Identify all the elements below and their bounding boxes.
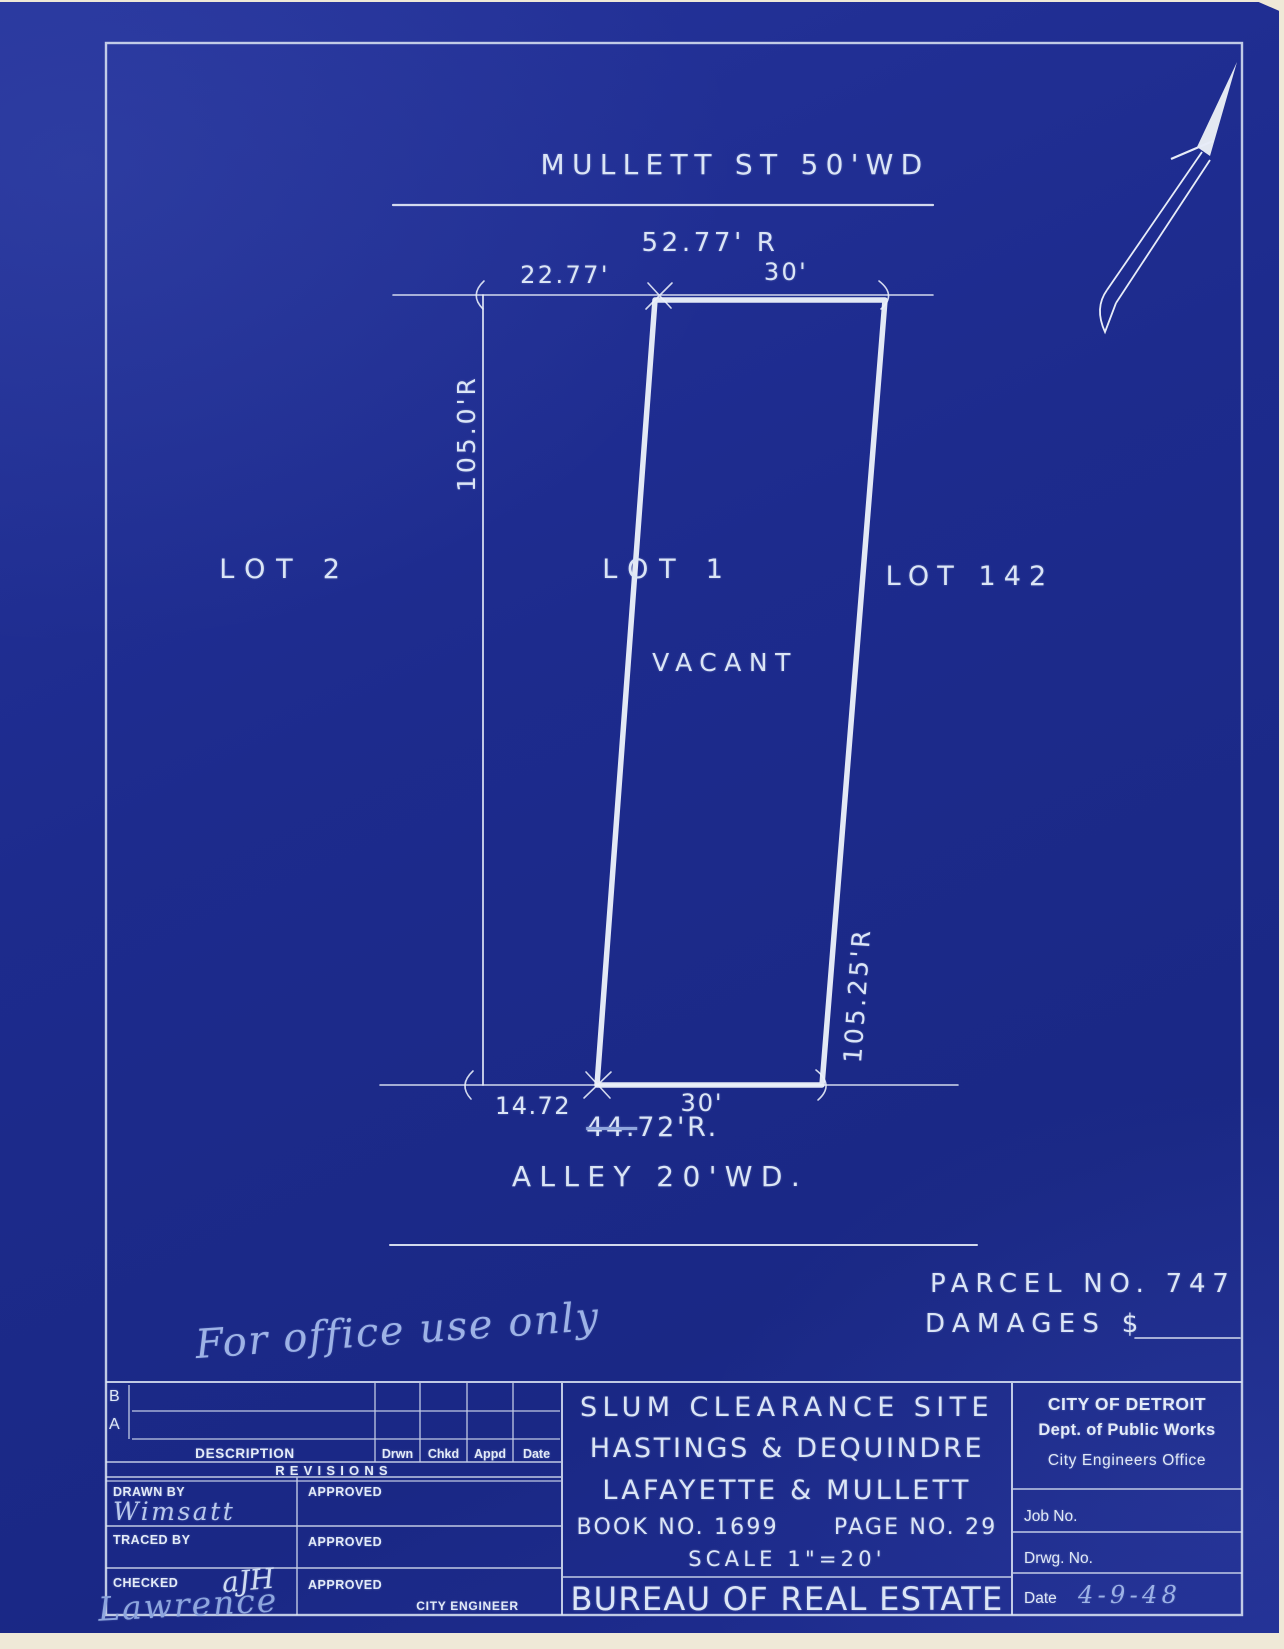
rear-dim-struck-part: 44. [586,1112,637,1143]
col-header-chkd: Chkd [420,1447,467,1461]
project-title-line2: HASTINGS & DEQUINDRE [567,1433,1007,1464]
date-label: Date [1024,1590,1057,1608]
col-header-date: Date [513,1447,560,1461]
col-header-appd: Appd [467,1447,513,1461]
lot-label-center: LOT 1 [578,554,758,585]
city-engineer-label: CITY ENGINEER [395,1599,540,1613]
dim-top-left: 22.77' [480,261,650,289]
scale-line: SCALE 1"=20' [567,1547,1007,1571]
street-name-top: MULLETT ST 50'WD [535,148,935,181]
org-office: City Engineers Office [1014,1452,1240,1470]
book-page-line: BOOK NO. 1699 PAGE NO. 29 [567,1515,1007,1540]
revision-row-b: B [109,1388,120,1406]
approved-label-1: APPROVED [308,1485,382,1499]
col-header-drwn: Drwn [375,1447,420,1461]
alley-label: ALLEY 20'WD. [470,1160,850,1193]
project-title-line3: LAFAYETTE & MULLETT [567,1475,1007,1506]
paper-corner [1254,0,1284,13]
vacant-label: VACANT [640,648,810,677]
org-name: CITY OF DETROIT [1014,1394,1240,1415]
job-no-label: Job No. [1024,1508,1077,1526]
depth-dim-left: 105.0'R [452,375,481,492]
north-arrow-icon [1100,62,1237,332]
revisions-heading: REVISIONS [106,1463,562,1478]
drawn-by-value: Wimsatt [113,1497,235,1526]
blueprint-page: MULLETT ST 50'WD 52.77' R 22.77' 30' 105… [0,0,1284,1649]
lot-label-left: LOT 2 [205,554,365,585]
traced-by-label: TRACED BY [113,1533,190,1547]
approved-label-3: APPROVED [308,1578,382,1592]
org-dept: Dept. of Public Works [1014,1421,1240,1440]
bureau-line: BUREAU OF REAL ESTATE [562,1580,1012,1618]
approved-label-2: APPROVED [308,1535,382,1549]
parcel-outline [597,300,885,1085]
rear-dim-rest-part: 72'R. [637,1112,719,1143]
revision-row-a: A [109,1416,120,1434]
project-title-line1: SLUM CLEARANCE SITE [567,1392,1007,1423]
date-value: 4-9-48 [1078,1581,1181,1609]
damages-label: DAMAGES $ [925,1309,1146,1339]
drwg-no-label: Drwg. No. [1024,1550,1093,1568]
lot-label-right: LOT 142 [870,561,1070,592]
frontage-record-dim: 52.77' R [595,228,825,258]
border-frame [106,43,1242,1615]
col-header-description: DESCRIPTION [150,1446,340,1461]
rear-record-dim: 44.72'R. [560,1112,745,1143]
parcel-number: PARCEL NO. 747 [930,1269,1236,1299]
dim-top-right: 30' [736,258,836,286]
